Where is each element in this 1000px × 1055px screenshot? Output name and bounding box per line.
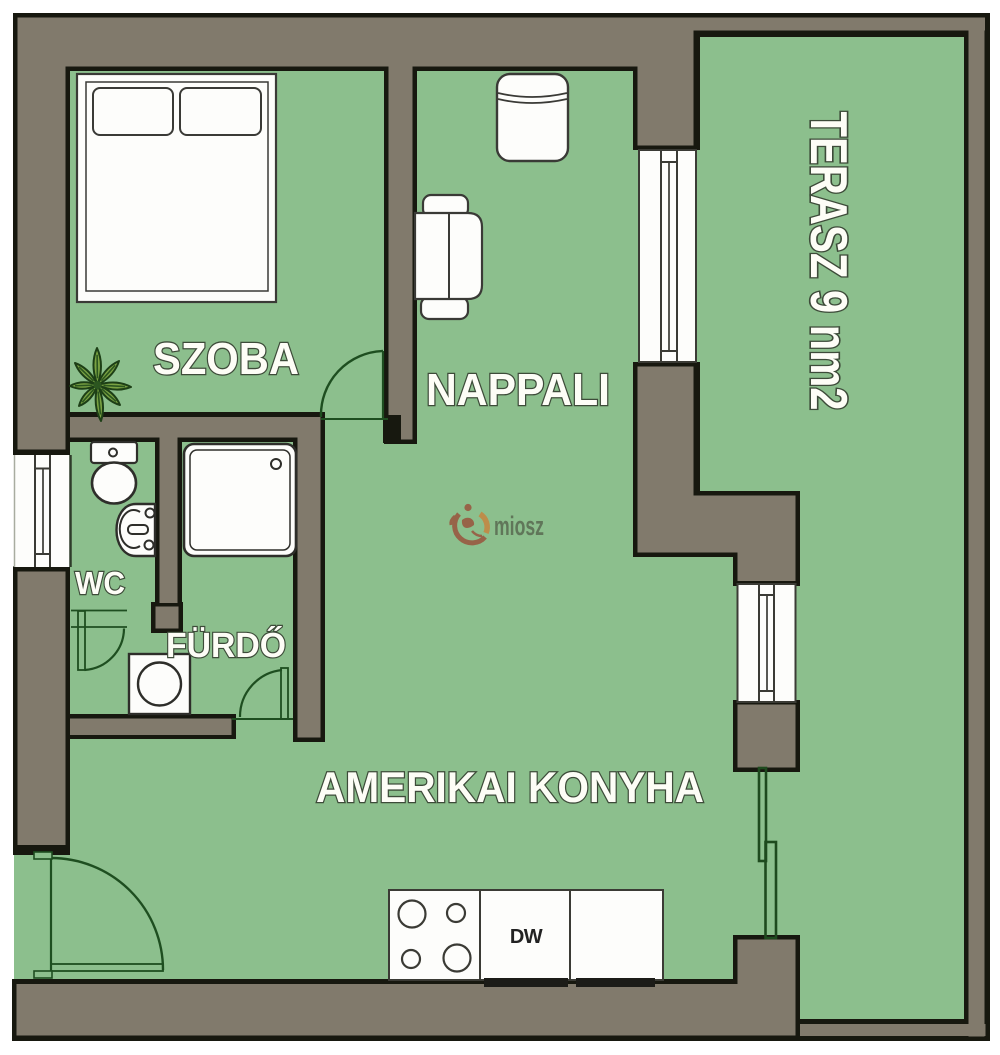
- svg-text:WC: WC: [75, 565, 125, 601]
- svg-text:SZOBA: SZOBA: [153, 333, 299, 384]
- svg-text:miosz: miosz: [494, 511, 544, 541]
- svg-text:NAPPALI: NAPPALI: [426, 364, 610, 415]
- svg-text:AMERIKAI KONYHA: AMERIKAI KONYHA: [316, 764, 704, 812]
- svg-text:TERASZ 9 nm2: TERASZ 9 nm2: [799, 112, 857, 411]
- svg-text:FÜRDŐ: FÜRDŐ: [166, 625, 286, 665]
- svg-text:DW: DW: [510, 926, 543, 948]
